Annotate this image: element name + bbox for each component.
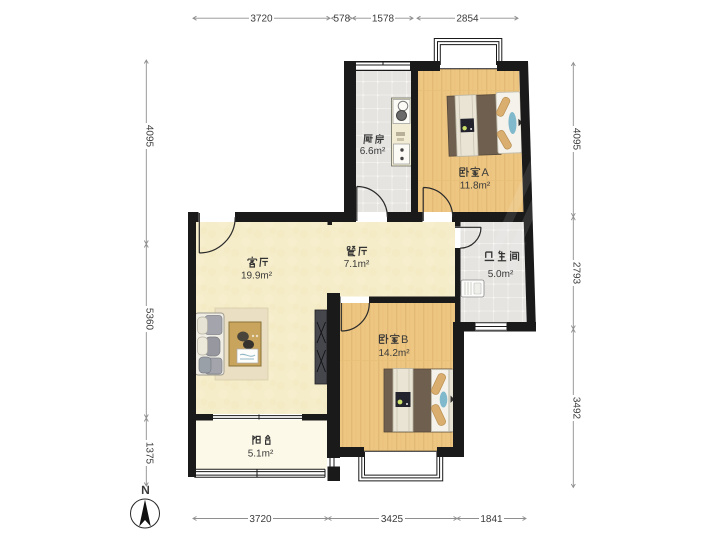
svg-text:5.0m²: 5.0m² xyxy=(488,269,514,280)
svg-text:N: N xyxy=(141,483,150,497)
svg-text:2854: 2854 xyxy=(456,14,479,25)
svg-text:7.1m²: 7.1m² xyxy=(344,259,370,270)
svg-text:1578: 1578 xyxy=(372,14,395,25)
svg-text:578: 578 xyxy=(333,14,350,25)
svg-text:2793: 2793 xyxy=(570,262,581,285)
svg-text:4095: 4095 xyxy=(570,128,581,151)
svg-text:B: B xyxy=(401,334,408,346)
svg-text:A: A xyxy=(482,167,490,179)
svg-text:19.9m²: 19.9m² xyxy=(241,271,273,282)
svg-text:14.2m²: 14.2m² xyxy=(378,348,410,359)
svg-text:5.1m²: 5.1m² xyxy=(248,449,274,460)
svg-text:5360: 5360 xyxy=(143,308,154,331)
svg-text:4095: 4095 xyxy=(143,125,154,148)
svg-text:11.8m²: 11.8m² xyxy=(460,181,491,192)
svg-text:1375: 1375 xyxy=(143,442,154,465)
svg-text:6.6m²: 6.6m² xyxy=(360,146,386,157)
svg-text:3720: 3720 xyxy=(249,514,272,525)
svg-text:1841: 1841 xyxy=(480,514,503,525)
svg-text:3720: 3720 xyxy=(250,14,273,25)
svg-text:3425: 3425 xyxy=(381,514,404,525)
svg-text:3492: 3492 xyxy=(570,397,581,420)
